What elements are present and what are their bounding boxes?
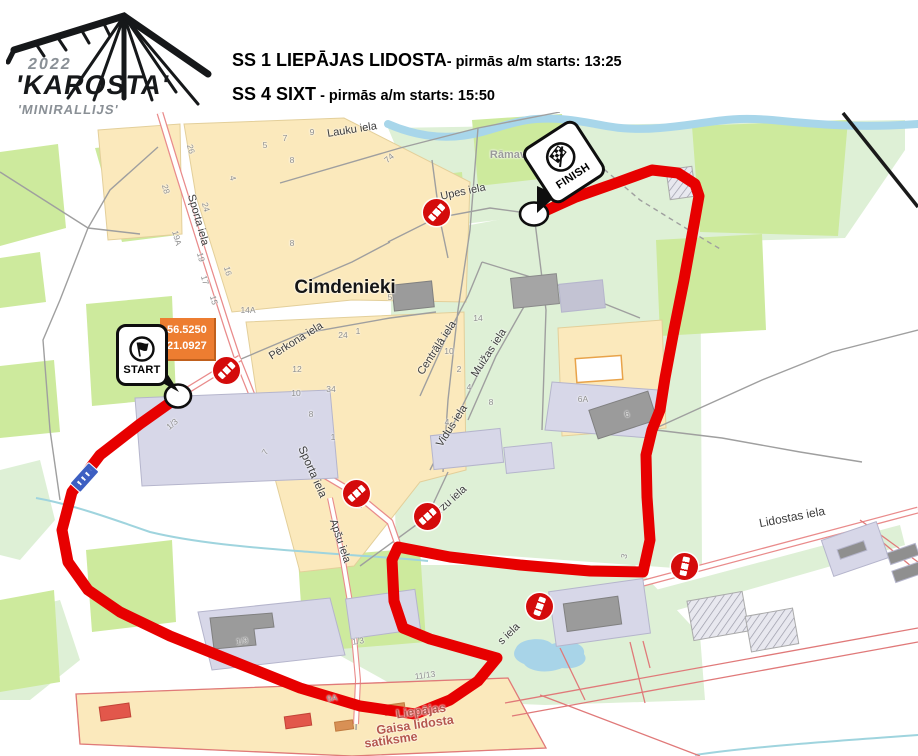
start-longitude: 21.0927 (167, 339, 214, 355)
stage-2-title: SS 4 SIXT (232, 84, 316, 104)
logo-name: 'KAROSTA' (13, 70, 172, 101)
start-coordinates-box: 56.5250 21.0927 (160, 318, 216, 361)
page-header: 2022 'KAROSTA' 'MINIRALLIJS' SS 1 LIEPĀJ… (0, 0, 918, 112)
stage-1-title: SS 1 LIEPĀJAS LIDOSTA (232, 50, 447, 70)
start-point-circle (165, 385, 191, 408)
stage-1-info: - pirmās a/m starts: 13:25 (447, 54, 622, 70)
event-logo: 2022 'KAROSTA' 'MINIRALLIJS' (6, 4, 226, 120)
start-flag-icon (127, 335, 157, 365)
start-sign-label: START (123, 364, 160, 376)
rally-map-page: Lauku ielaUpes ielaSporta ielaSporta iel… (0, 0, 918, 756)
stage-2-line: SS 4 SIXT - pirmās a/m starts: 15:50 (232, 84, 495, 105)
start-sign: START (116, 324, 168, 386)
logo-subtitle: 'MINIRALLIJS' (17, 102, 120, 117)
stage-2-info: - pirmās a/m starts: 15:50 (316, 88, 495, 104)
start-latitude: 56.5250 (167, 323, 214, 339)
stage-1-line: SS 1 LIEPĀJAS LIDOSTA- pirmās a/m starts… (232, 50, 622, 71)
